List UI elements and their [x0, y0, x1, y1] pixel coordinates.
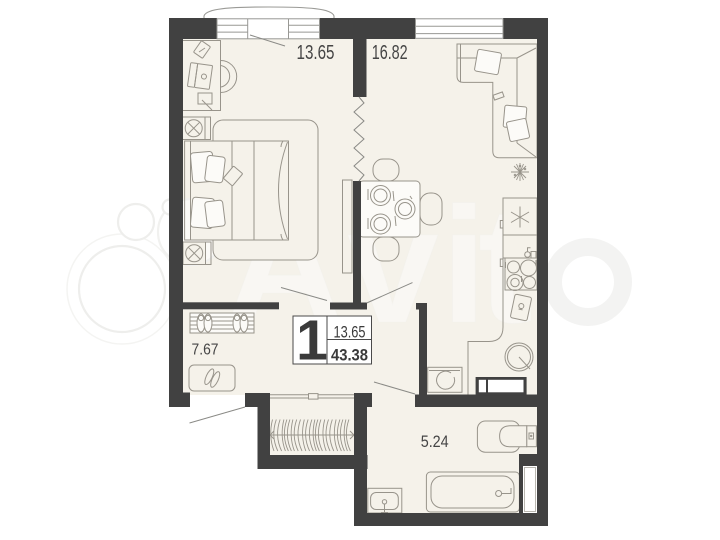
svg-text:43.38: 43.38 [331, 346, 368, 365]
svg-text:5.24: 5.24 [421, 432, 449, 451]
svg-text:13.65: 13.65 [297, 42, 335, 64]
svg-text:16.82: 16.82 [372, 42, 408, 64]
svg-text:13.65: 13.65 [334, 324, 366, 342]
svg-text:7.67: 7.67 [192, 342, 219, 359]
svg-text:1: 1 [296, 309, 328, 373]
